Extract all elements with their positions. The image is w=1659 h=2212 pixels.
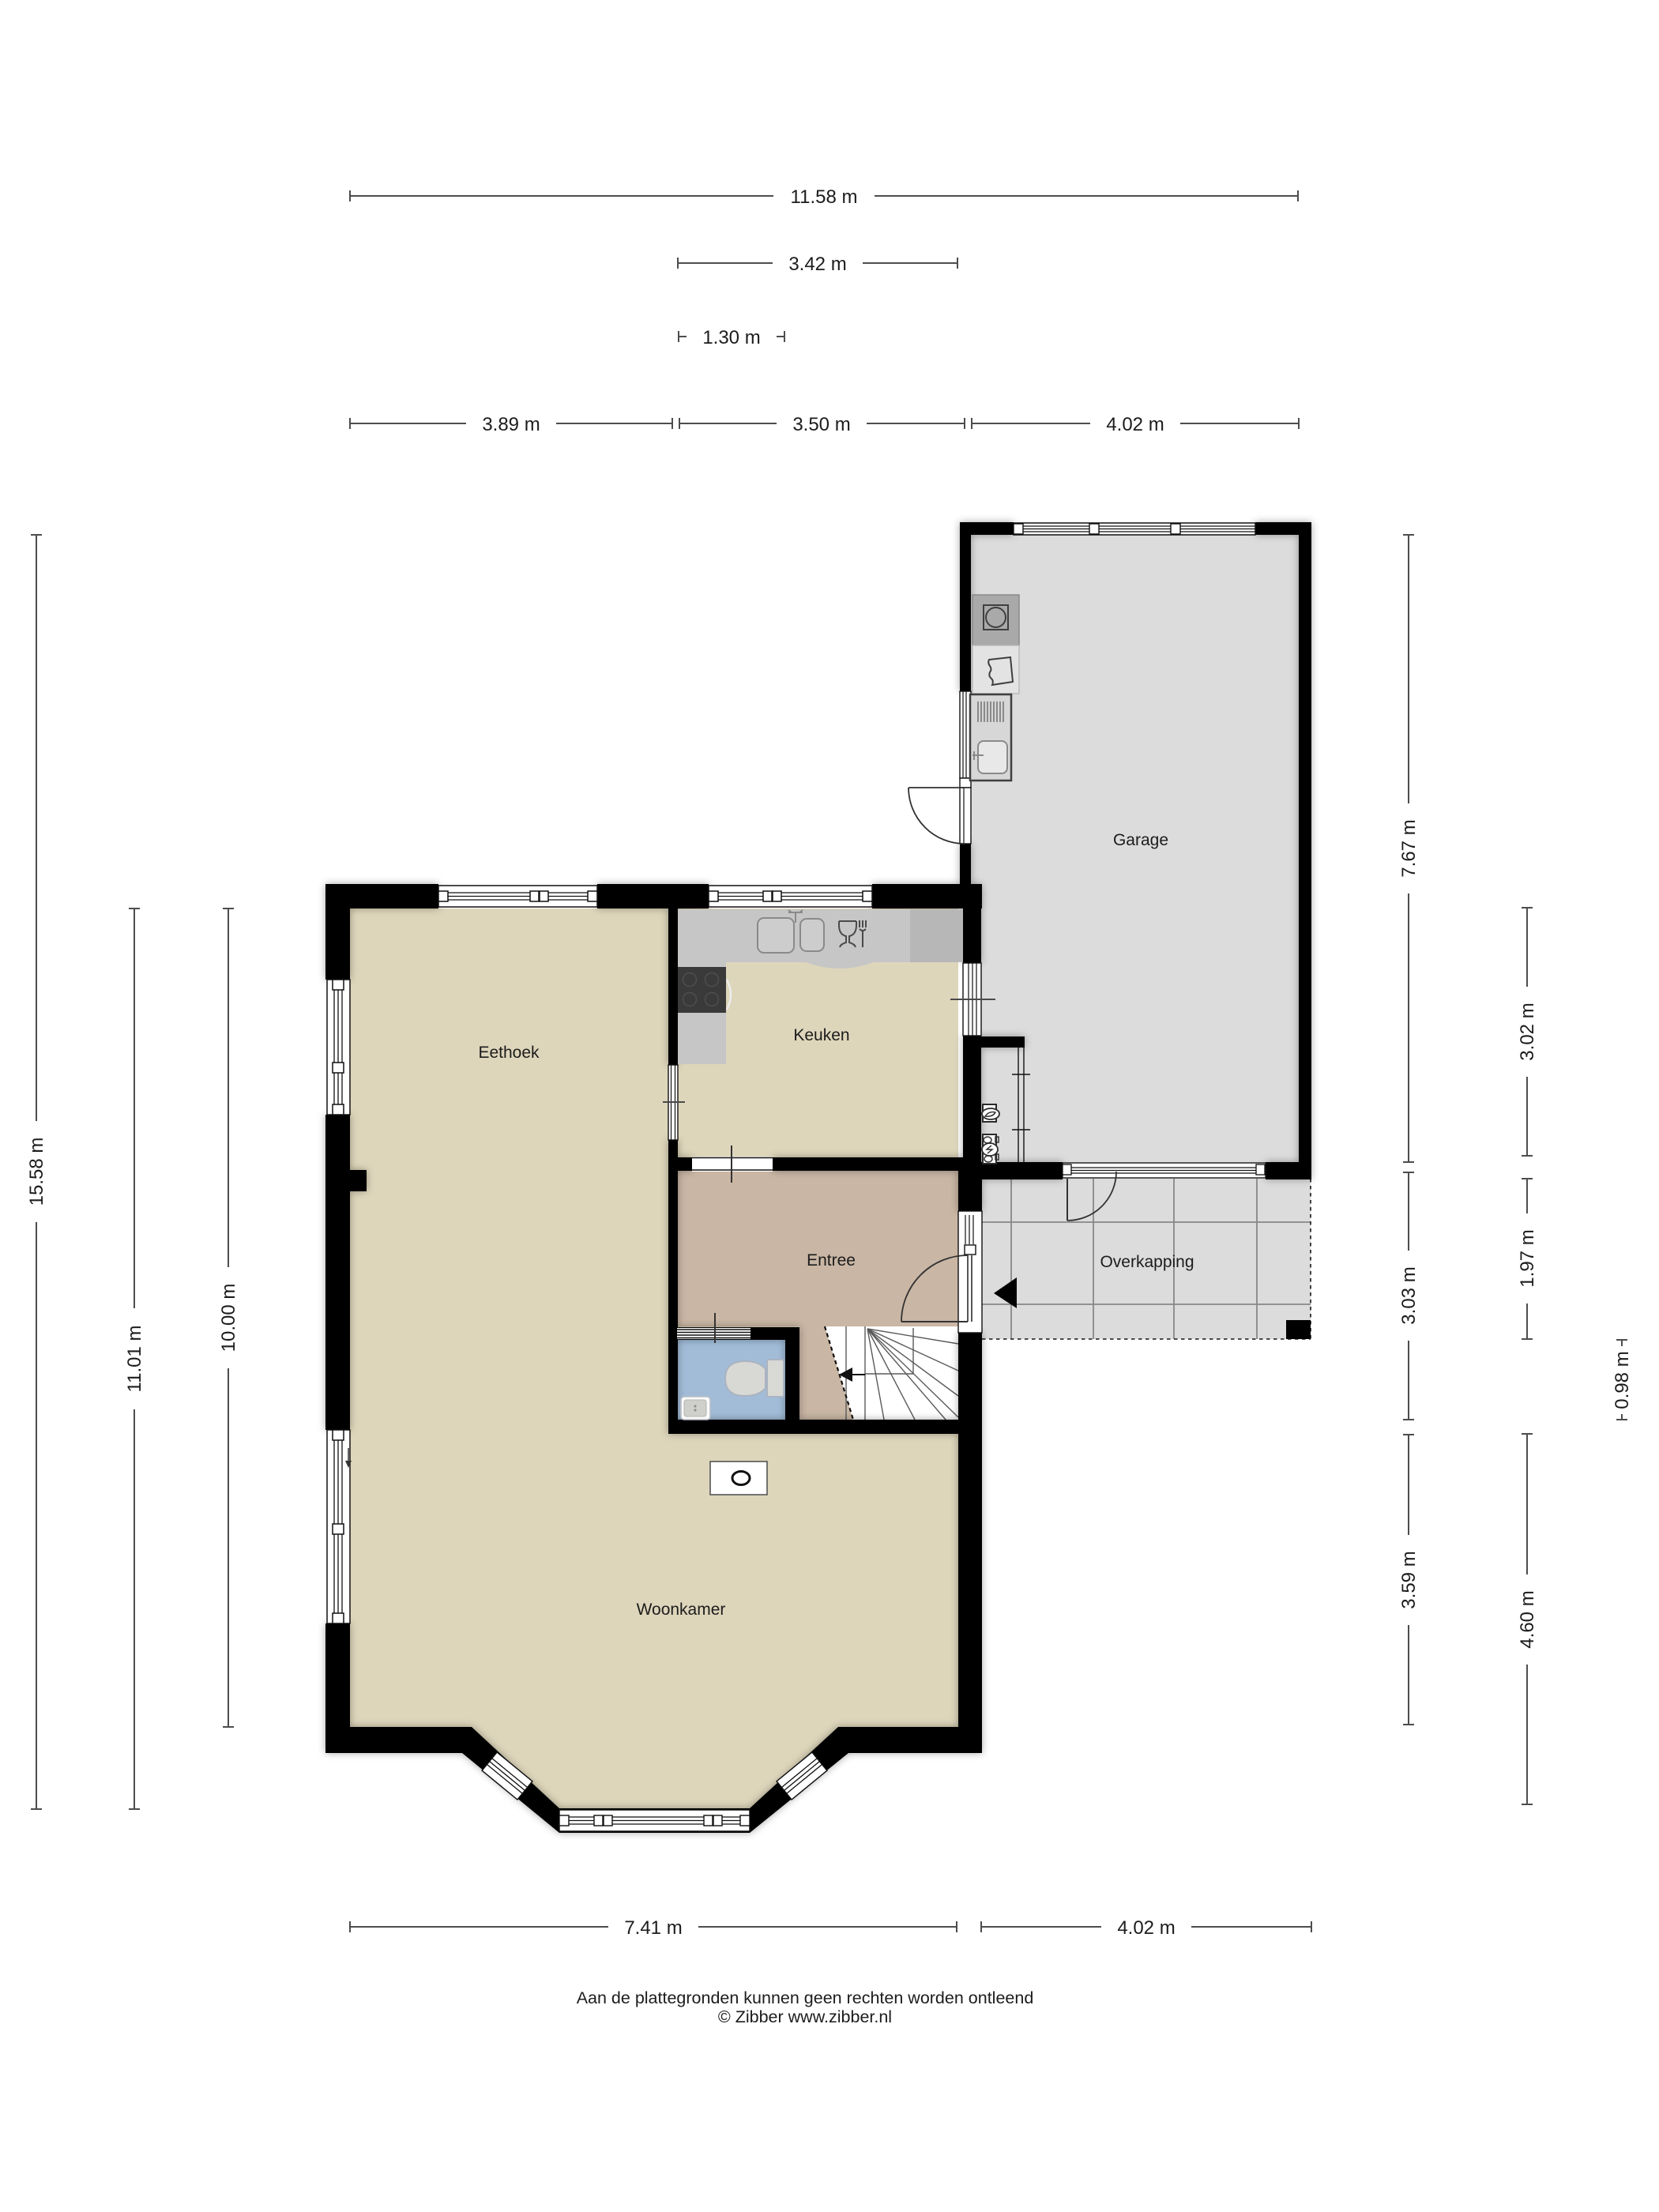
svg-text:3.89 m: 3.89 m	[482, 414, 540, 435]
svg-text:1.30 m: 1.30 m	[702, 327, 760, 348]
svg-text:4.02 m: 4.02 m	[1106, 414, 1164, 435]
svg-text:15.58 m: 15.58 m	[26, 1138, 47, 1206]
svg-text:10.00 m: 10.00 m	[218, 1284, 239, 1352]
svg-text:Overkapping: Overkapping	[1100, 1253, 1194, 1271]
svg-text:Aan de plattegronden kunnen ge: Aan de plattegronden kunnen geen rechten…	[577, 1988, 1034, 2007]
svg-text:0.98 m: 0.98 m	[1612, 1351, 1633, 1409]
svg-text:3.59 m: 3.59 m	[1398, 1551, 1420, 1608]
svg-text:Keuken: Keuken	[793, 1026, 849, 1044]
svg-text:11.58 m: 11.58 m	[791, 186, 858, 208]
svg-text:Woonkamer: Woonkamer	[637, 1601, 726, 1619]
svg-text:Garage: Garage	[1113, 831, 1168, 849]
svg-text:1.97 m: 1.97 m	[1517, 1229, 1538, 1287]
svg-text:4.60 m: 4.60 m	[1517, 1590, 1538, 1648]
svg-text:© Zibber www.zibber.nl: © Zibber www.zibber.nl	[718, 2007, 892, 2026]
svg-text:3.03 m: 3.03 m	[1398, 1266, 1420, 1324]
svg-text:7.41 m: 7.41 m	[624, 1917, 682, 1939]
svg-text:Eethoek: Eethoek	[478, 1044, 540, 1062]
svg-text:3.02 m: 3.02 m	[1517, 1003, 1538, 1060]
svg-text:7.67 m: 7.67 m	[1398, 819, 1420, 877]
svg-text:3.42 m: 3.42 m	[788, 254, 846, 275]
svg-text:3.50 m: 3.50 m	[792, 414, 850, 435]
svg-text:4.02 m: 4.02 m	[1117, 1917, 1175, 1939]
svg-text:11.01 m: 11.01 m	[124, 1326, 145, 1393]
svg-text:Entree: Entree	[807, 1251, 856, 1270]
